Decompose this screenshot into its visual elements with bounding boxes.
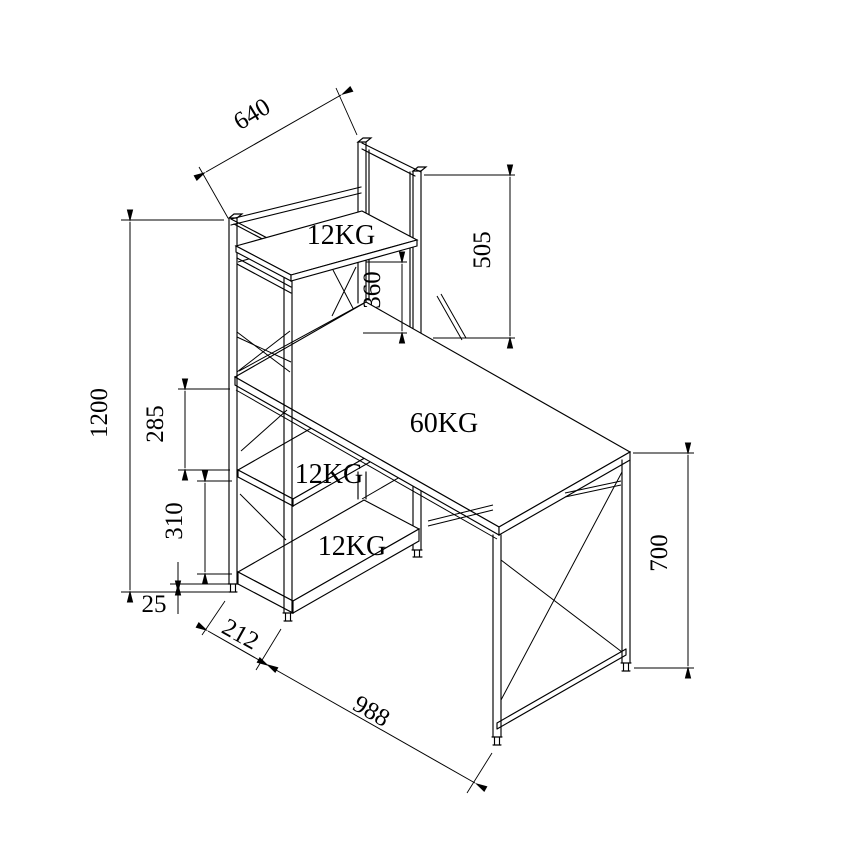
- dim-700-label: 700: [646, 534, 673, 572]
- dim-988-label: 988: [348, 691, 394, 733]
- load-middle-shelf-label: 12KG: [295, 459, 363, 490]
- dim-505-label: 505: [469, 231, 496, 269]
- dim-640-label: 640: [229, 93, 275, 135]
- technical-drawing-page: 640 505 360 1200 285 310 25 212 988 700 …: [0, 0, 868, 868]
- desk: [235, 302, 631, 745]
- dim-1200-label: 1200: [86, 388, 113, 438]
- load-top-shelf-label: 12KG: [307, 220, 375, 251]
- dim-360-label: 360: [359, 271, 386, 309]
- dim-285-label: 285: [142, 405, 169, 443]
- desk-technical-drawing: 640 505 360 1200 285 310 25 212 988 700 …: [0, 0, 868, 868]
- dim-25-label: 25: [142, 591, 167, 618]
- load-bottom-shelf-label: 12KG: [318, 531, 386, 562]
- dim-310-label: 310: [161, 502, 188, 540]
- load-desktop-label: 60KG: [410, 408, 478, 439]
- dim-212-label: 212: [217, 614, 263, 656]
